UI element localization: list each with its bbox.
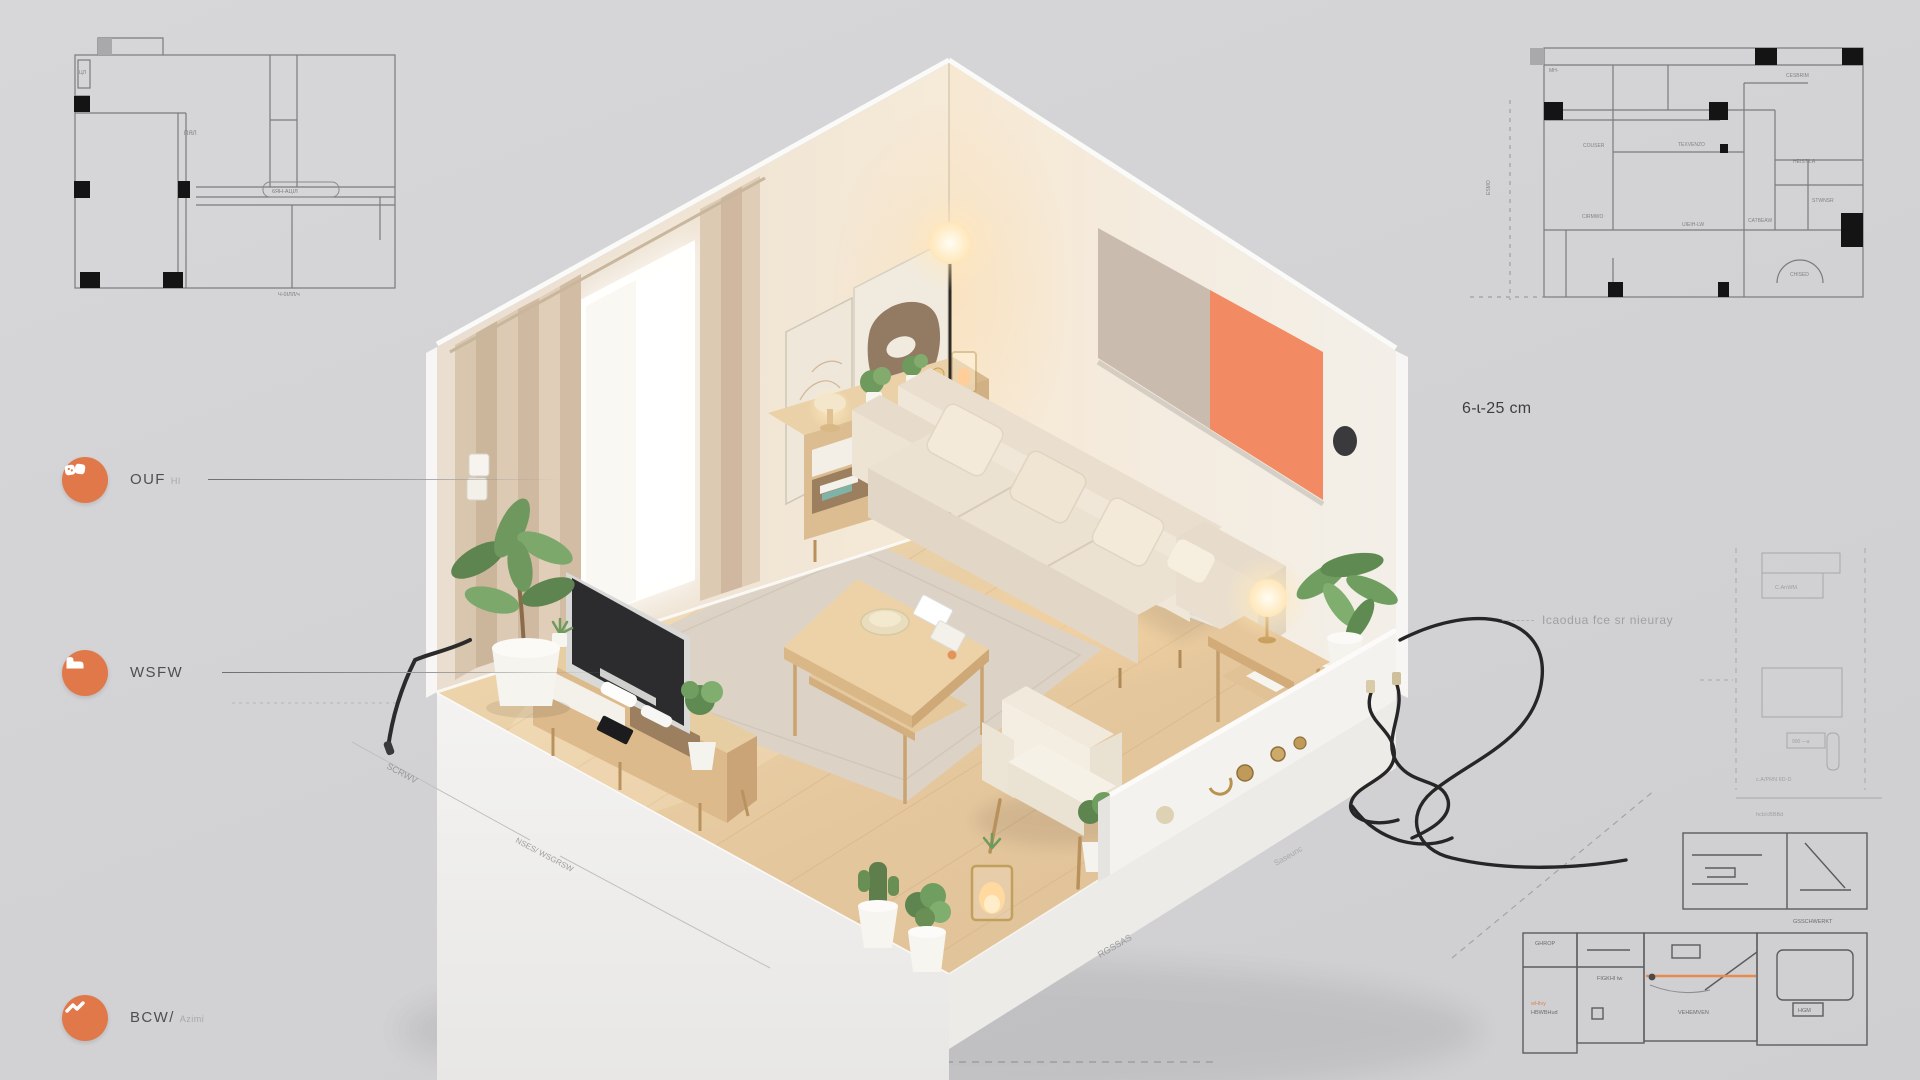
- plan-label: GHROP: [1535, 941, 1556, 947]
- plan-label: 900 —a: [1792, 739, 1810, 745]
- plan-label: CIRMWO: [1582, 214, 1603, 220]
- callout-power: BCW/Azimi: [62, 995, 204, 1041]
- callout-suffix: HI: [171, 476, 181, 486]
- callout-badge: [62, 650, 108, 696]
- plan-room-label: ПЯЛ: [184, 131, 197, 137]
- callout-leader-line-1: [208, 479, 560, 480]
- faint-note: Icaodua fce sr nieuray: [1542, 613, 1673, 627]
- plan-label: CHISED: [1790, 272, 1809, 278]
- plan-label: HBWBHud: [1531, 1010, 1558, 1016]
- plan-label: HEISTILA: [1793, 159, 1816, 165]
- plan-columns: [1544, 48, 1863, 297]
- plan-label: ESMO: [1486, 180, 1492, 195]
- callout-label: BCW/: [130, 1009, 175, 1026]
- plan-side-label: ЦЛ: [79, 70, 86, 76]
- isometric-room-poster: ПЯЛ 6ЯН-АЦІЛ Ч-0ІЛЛ/ч ЦЛ: [0, 0, 1920, 1080]
- plan-label: C.AnWM.: [1775, 585, 1799, 591]
- plan-label: HGM: [1798, 1008, 1811, 1014]
- window: [575, 232, 700, 636]
- plan-label: STWNSR: [1812, 198, 1834, 204]
- dimension-note: 6-ɩ-25 cm: [1462, 400, 1531, 418]
- plan-label: GSSCHWERKT: [1793, 919, 1833, 925]
- plan-bottom-label: Ч-0ІЛЛ/ч: [278, 292, 300, 298]
- plan-columns: [74, 96, 190, 288]
- plan-label: VEHEMVEN: [1678, 1010, 1709, 1016]
- callout-badge: [62, 995, 108, 1041]
- callout-label: OUF: [130, 471, 166, 488]
- floor-plan-top-right: MH- CESBRIM COUSER TEXVENZO HEISTILA STW…: [1470, 48, 1863, 300]
- callout-viewing: OUFHI: [62, 457, 181, 503]
- callout-leader-line-2: [222, 672, 614, 673]
- floor-plan-right-faint: C.AnWM. 900 —a c.A/PRN IID-D hcb/cBBBd: [1700, 548, 1882, 818]
- plan-label: FIGKHI tw: [1597, 976, 1622, 982]
- plan-label: wHtvy: [1530, 1001, 1546, 1007]
- plan-label: MH-: [1549, 68, 1559, 74]
- scene-graphic: ПЯЛ 6ЯН-АЦІЛ Ч-0ІЛЛ/ч ЦЛ: [0, 0, 1920, 1080]
- faint-note-leader: [1502, 620, 1534, 621]
- plan-label: UIEIH-LW: [1682, 222, 1704, 228]
- floor-plan-top-left: ПЯЛ 6ЯН-АЦІЛ Ч-0ІЛЛ/ч ЦЛ: [74, 38, 395, 298]
- plan-pill-label: 6ЯН-АЦІЛ: [272, 189, 298, 195]
- plan-label: CATBEAW: [1748, 218, 1772, 224]
- floor-annotation: Saseunc: [1273, 844, 1304, 867]
- floor-annotation: SCRWV: [385, 761, 419, 785]
- plan-label: hcb/cBBBd: [1756, 812, 1783, 818]
- lamp-globe: [929, 222, 971, 264]
- plan-label: c.A/PRN IID-D: [1756, 777, 1791, 783]
- wall-speaker: [1333, 426, 1357, 456]
- callout-suffix: Azimi: [180, 1014, 205, 1024]
- plan-label: CESBRIM: [1786, 73, 1809, 79]
- plan-label: TEXVENZO: [1678, 142, 1705, 148]
- callout-label: WSFW: [130, 664, 183, 681]
- plan-label: COUSER: [1583, 143, 1605, 149]
- callout-sofa: WSFW: [62, 650, 188, 696]
- callout-badge: [62, 457, 108, 503]
- cable-long-right: [1400, 619, 1626, 868]
